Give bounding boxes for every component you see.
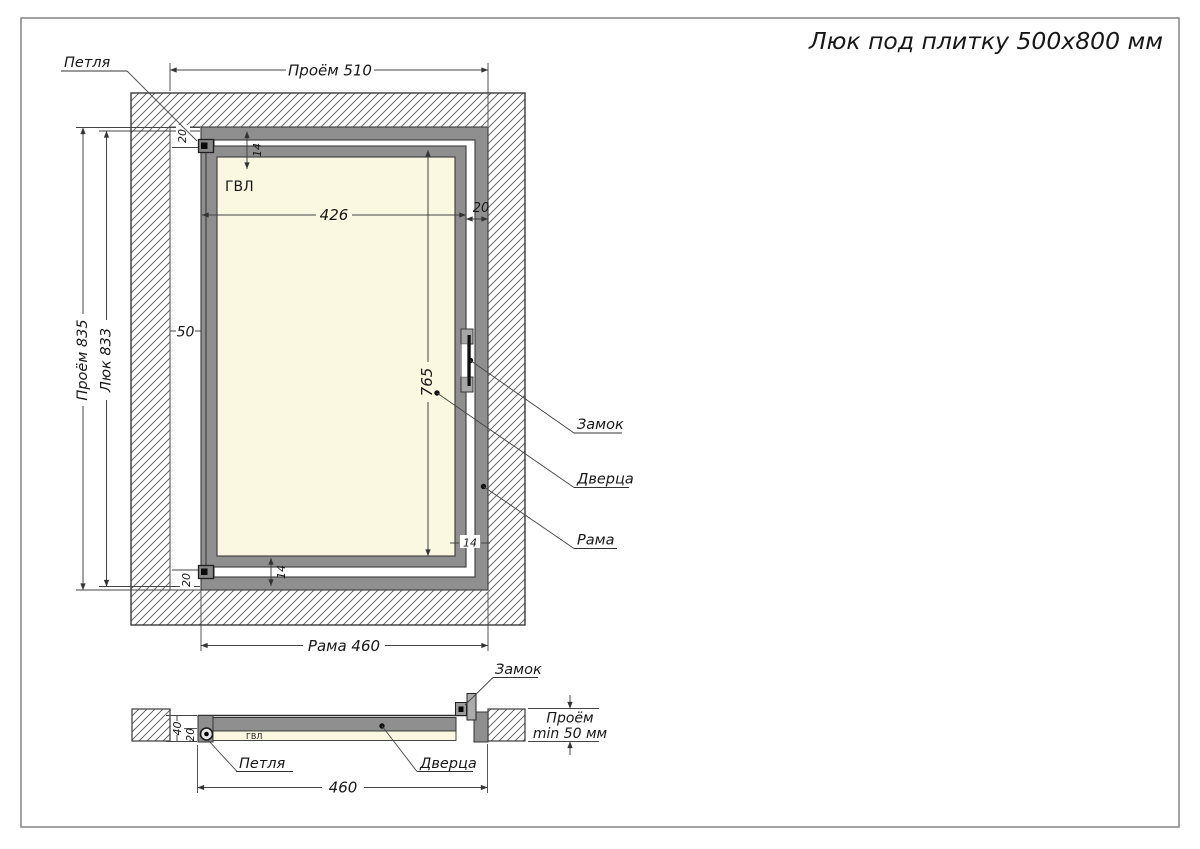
svg-text:Рама: Рама bbox=[577, 533, 614, 549]
svg-text:Проём 510: Проём 510 bbox=[288, 62, 372, 80]
technical-drawing: Люк под плитку 500х800 мм bbox=[0, 0, 1200, 849]
svg-text:14: 14 bbox=[275, 565, 288, 579]
front-view: ГВЛ Проём 510 Проём 835 Люк 833 50 bbox=[61, 55, 634, 655]
svg-text:Замок: Замок bbox=[577, 417, 624, 433]
hinge-bottom bbox=[199, 566, 214, 579]
section-lock-callout: Замок bbox=[465, 662, 542, 705]
dim-opening-depth: Проём min 50 мм bbox=[528, 695, 608, 755]
svg-text:Проём 835: Проём 835 bbox=[75, 319, 91, 400]
svg-text:20: 20 bbox=[180, 573, 193, 587]
svg-text:Люк 833: Люк 833 bbox=[99, 328, 115, 393]
svg-text:50: 50 bbox=[177, 325, 195, 341]
section-hinge-callout: Петля bbox=[208, 740, 293, 772]
svg-text:460: 460 bbox=[329, 779, 358, 797]
section-door-slab bbox=[213, 718, 456, 732]
material-label: ГВЛ bbox=[225, 179, 254, 195]
dim-depth-door: 20 bbox=[184, 728, 197, 742]
svg-text:Петля: Петля bbox=[239, 756, 286, 772]
svg-text:Дверца: Дверца bbox=[576, 472, 634, 488]
svg-text:20: 20 bbox=[185, 728, 197, 742]
svg-text:20: 20 bbox=[473, 201, 490, 216]
svg-text:14: 14 bbox=[463, 537, 477, 550]
dim-opening-height: Проём 835 bbox=[74, 128, 91, 591]
svg-text:Рама 460: Рама 460 bbox=[308, 637, 380, 655]
section-material-label: ГВЛ bbox=[246, 732, 262, 741]
svg-text:Замок: Замок bbox=[495, 662, 542, 678]
svg-text:Дверца: Дверца bbox=[419, 756, 477, 772]
svg-text:40: 40 bbox=[171, 722, 184, 736]
svg-text:426: 426 bbox=[320, 206, 349, 224]
hinge-top bbox=[199, 140, 214, 153]
drawing-page: Люк под плитку 500х800 мм bbox=[0, 0, 1200, 849]
dim-hatch-height: Люк 833 bbox=[98, 131, 115, 587]
svg-text:14: 14 bbox=[251, 143, 264, 157]
svg-text:Петля: Петля bbox=[64, 55, 111, 71]
page-title: Люк под плитку 500х800 мм bbox=[808, 27, 1163, 55]
svg-text:Проём: Проём bbox=[546, 711, 594, 727]
svg-text:765: 765 bbox=[418, 368, 436, 397]
section-hinge bbox=[201, 728, 213, 740]
svg-text:min 50 мм: min 50 мм bbox=[533, 726, 608, 742]
section-view: ГВЛ 40 20 bbox=[132, 662, 608, 797]
section-wall-left bbox=[132, 709, 170, 741]
section-wall-right bbox=[488, 709, 525, 741]
